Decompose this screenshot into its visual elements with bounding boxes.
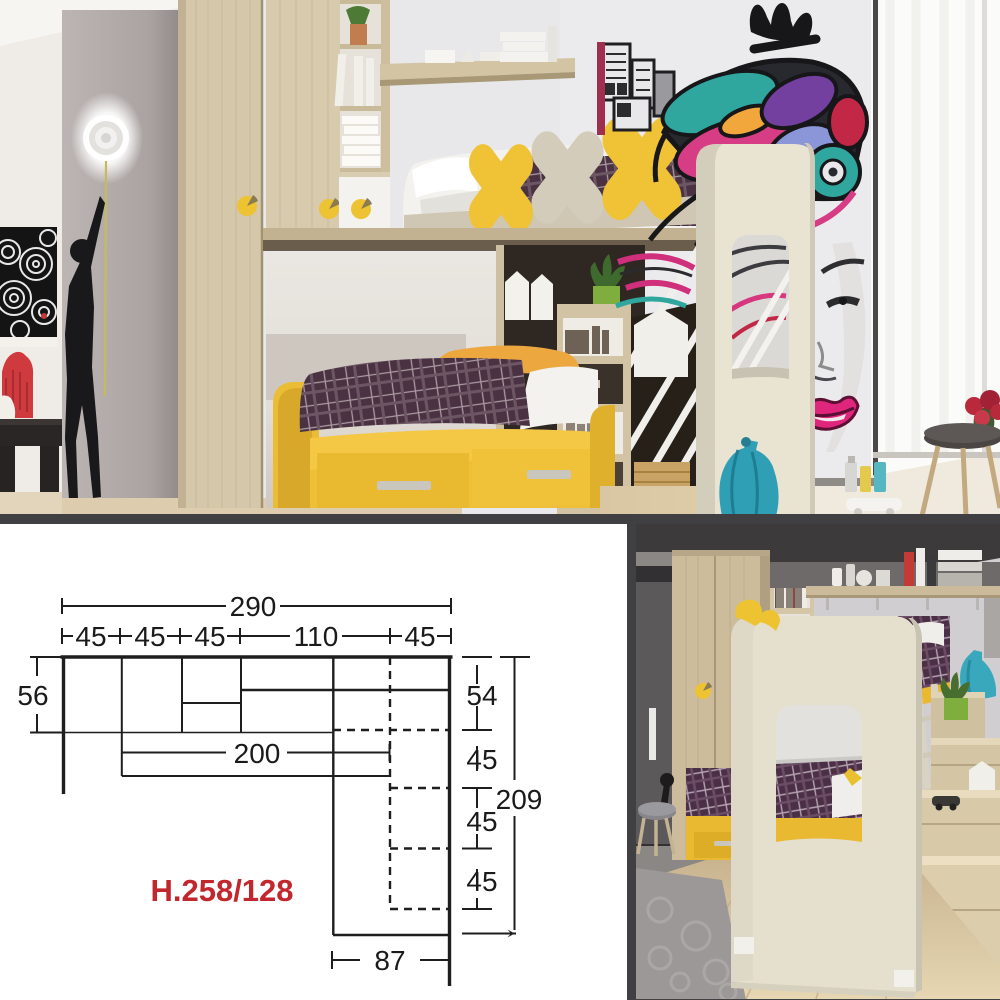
svg-text:110: 110 bbox=[294, 621, 339, 652]
svg-text:209: 209 bbox=[496, 784, 543, 815]
svg-text:87: 87 bbox=[374, 945, 405, 976]
svg-text:45: 45 bbox=[134, 621, 165, 652]
svg-text:45: 45 bbox=[75, 621, 106, 652]
svg-text:45: 45 bbox=[404, 621, 435, 652]
svg-text:45: 45 bbox=[194, 621, 225, 652]
svg-text:H.258/128: H.258/128 bbox=[150, 873, 293, 908]
svg-text:56: 56 bbox=[17, 680, 48, 711]
svg-text:54: 54 bbox=[466, 680, 497, 711]
svg-text:200: 200 bbox=[234, 738, 281, 769]
svg-text:45: 45 bbox=[466, 806, 497, 837]
svg-text:45: 45 bbox=[466, 866, 497, 897]
svg-text:45: 45 bbox=[466, 744, 497, 775]
svg-text:290: 290 bbox=[230, 591, 277, 622]
